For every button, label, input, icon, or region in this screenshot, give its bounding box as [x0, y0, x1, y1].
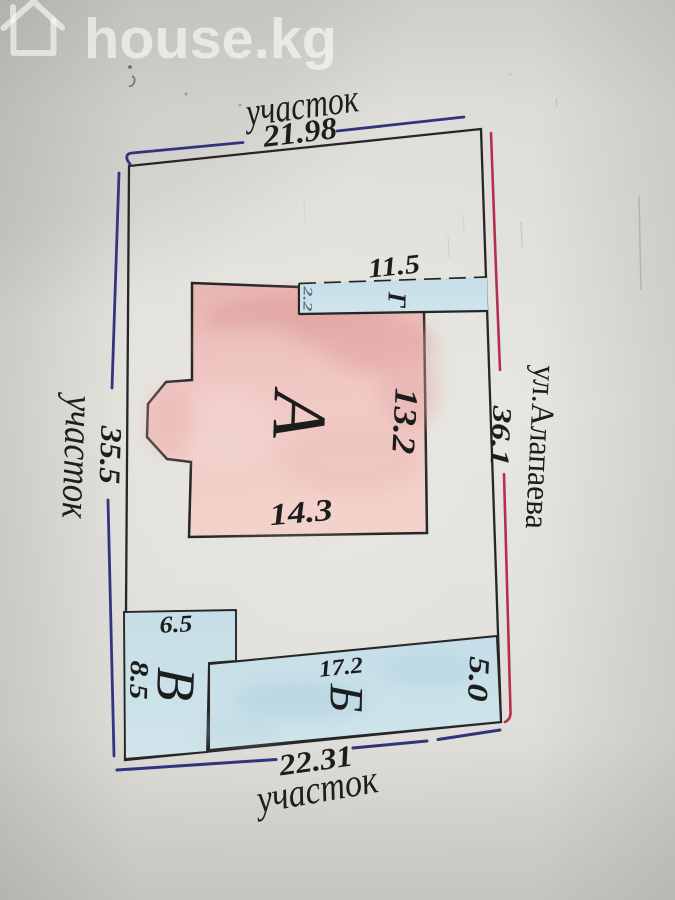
svg-text:В: В: [145, 666, 207, 702]
svg-text:36.1: 36.1: [484, 404, 517, 467]
svg-text:6.5: 6.5: [159, 611, 193, 639]
svg-text:А: А: [256, 385, 344, 441]
svg-text:5.0: 5.0: [461, 656, 495, 703]
svg-text:участок: участок: [53, 391, 102, 519]
svg-text:17.2: 17.2: [318, 652, 364, 681]
svg-text:Б: Б: [319, 682, 373, 712]
svg-text:13.2: 13.2: [384, 387, 423, 455]
svg-text:house.kg: house.kg: [84, 7, 337, 71]
svg-text:14.3: 14.3: [268, 492, 334, 532]
svg-text:11.5: 11.5: [367, 248, 422, 283]
svg-text:2.2: 2.2: [300, 285, 315, 313]
svg-text:Г: Г: [382, 291, 411, 309]
